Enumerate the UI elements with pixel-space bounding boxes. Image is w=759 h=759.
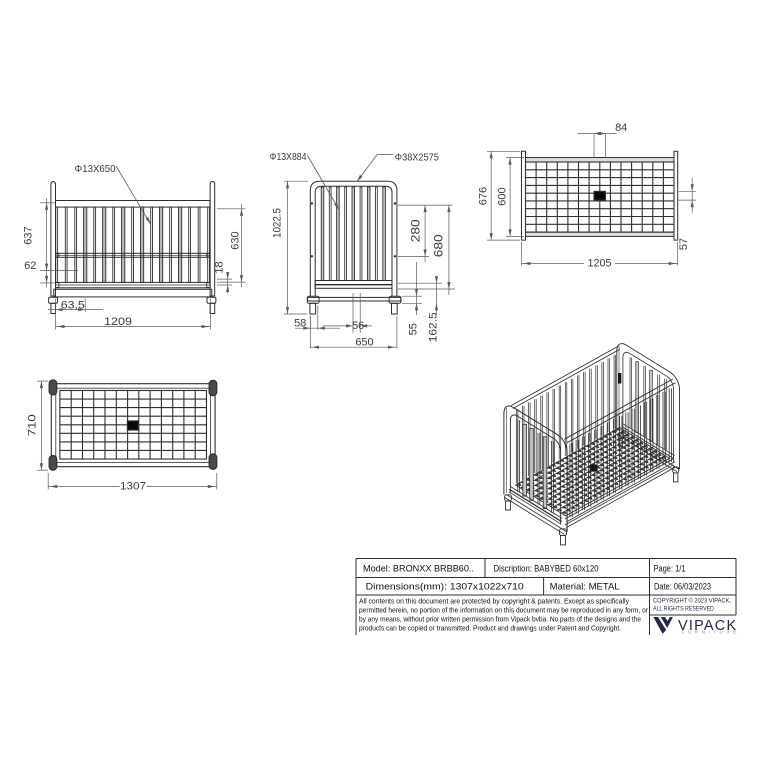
svg-text:162.5: 162.5 bbox=[427, 312, 439, 342]
svg-text:Page: 1/1: Page: 1/1 bbox=[654, 564, 686, 575]
svg-text:FURNITURE: FURNITURE bbox=[682, 630, 737, 636]
svg-text:Model: BRONXX BRBB60..: Model: BRONXX BRBB60.. bbox=[363, 564, 474, 575]
svg-text:650: 650 bbox=[355, 337, 373, 349]
svg-text:COPYRIGHT © 2023 VIPACK,: COPYRIGHT © 2023 VIPACK, bbox=[653, 598, 731, 605]
svg-text:600: 600 bbox=[497, 187, 509, 205]
svg-text:1209: 1209 bbox=[104, 316, 132, 328]
svg-text:18: 18 bbox=[214, 261, 226, 273]
svg-text:Material: METAL: Material: METAL bbox=[550, 582, 620, 593]
svg-text:58: 58 bbox=[294, 318, 306, 330]
svg-text:1205: 1205 bbox=[588, 258, 612, 270]
svg-text:1022.5: 1022.5 bbox=[272, 208, 284, 238]
svg-text:62: 62 bbox=[24, 260, 36, 272]
svg-text:Discription: BABYBED 60x120: Discription: BABYBED 60x120 bbox=[494, 564, 599, 575]
svg-text:permitted herein, no portion o: permitted herein, no portion of the info… bbox=[359, 608, 649, 615]
svg-text:Φ13X884: Φ13X884 bbox=[270, 151, 307, 163]
svg-text:84: 84 bbox=[615, 122, 627, 134]
svg-text:products can be copied or tran: products can be copied or transmitted. P… bbox=[359, 626, 621, 633]
svg-text:280: 280 bbox=[411, 219, 423, 242]
svg-text:1307: 1307 bbox=[120, 481, 146, 493]
svg-text:680: 680 bbox=[434, 234, 446, 257]
svg-text:Date: 06/03/2023: Date: 06/03/2023 bbox=[654, 582, 711, 593]
svg-text:630: 630 bbox=[230, 231, 242, 249]
svg-text:55: 55 bbox=[407, 323, 419, 335]
svg-text:Dimensions(mm): 1307x1022x710: Dimensions(mm): 1307x1022x710 bbox=[366, 582, 524, 593]
svg-text:676: 676 bbox=[478, 187, 490, 205]
svg-text:710: 710 bbox=[26, 414, 38, 436]
svg-text:by any means, without prior wr: by any means, without prior written perm… bbox=[359, 617, 641, 624]
svg-text:Φ38X2575: Φ38X2575 bbox=[395, 151, 439, 163]
svg-text:All contents on this document: All contents on this document are protec… bbox=[359, 599, 630, 606]
svg-text:57: 57 bbox=[678, 238, 690, 250]
svg-text:63,5: 63,5 bbox=[61, 300, 85, 312]
svg-text:637: 637 bbox=[23, 226, 35, 244]
svg-text:Φ13X650: Φ13X650 bbox=[75, 163, 116, 175]
svg-text:ALL RIGHTS RESERVED: ALL RIGHTS RESERVED bbox=[653, 606, 714, 613]
svg-text:56: 56 bbox=[352, 320, 364, 332]
